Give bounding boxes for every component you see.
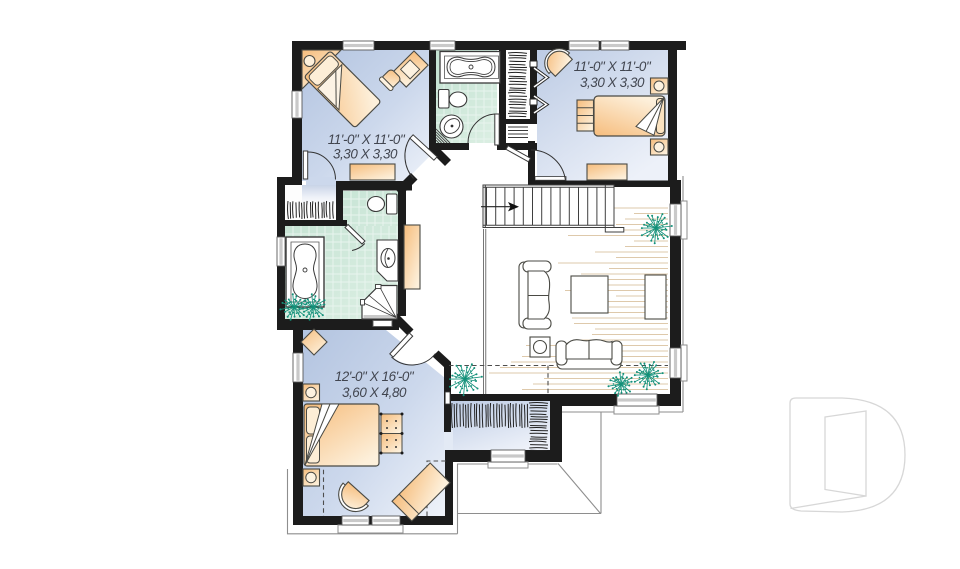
svg-text:3,30 X 3,30: 3,30 X 3,30	[333, 147, 398, 162]
svg-text:12'-0" X 16'-0": 12'-0" X 16'-0"	[335, 369, 415, 384]
svg-text:3,60 X 4,80: 3,60 X 4,80	[342, 385, 407, 400]
svg-text:11'-0" X 11'-0": 11'-0" X 11'-0"	[328, 132, 406, 147]
svg-text:3,30 X 3,30: 3,30 X 3,30	[580, 75, 645, 90]
svg-text:11'-0" X 11'-0": 11'-0" X 11'-0"	[574, 59, 652, 74]
